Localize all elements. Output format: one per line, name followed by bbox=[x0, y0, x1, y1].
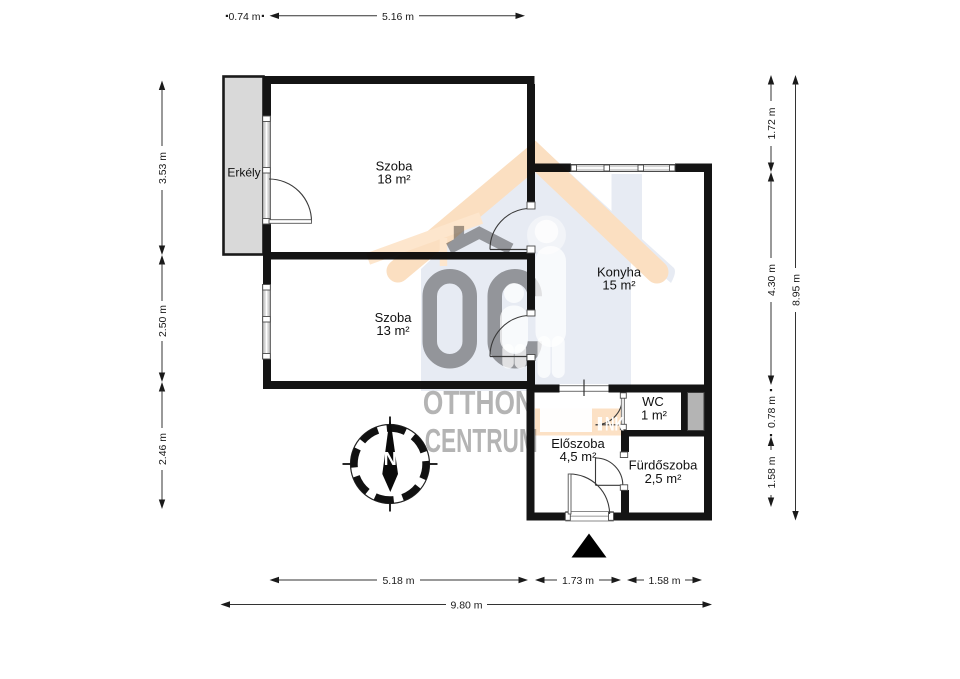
svg-text:N: N bbox=[384, 449, 397, 469]
svg-text:0.74 m: 0.74 m bbox=[228, 11, 260, 23]
svg-text:Konyha15 m²: Konyha15 m² bbox=[597, 265, 642, 293]
svg-text:2.50 m: 2.50 m bbox=[157, 305, 169, 337]
svg-text:1.58 m: 1.58 m bbox=[648, 575, 680, 587]
svg-text:Szoba13 m²: Szoba13 m² bbox=[375, 310, 413, 338]
svg-text:Erkély: Erkély bbox=[227, 166, 260, 180]
svg-text:1.58 m: 1.58 m bbox=[766, 456, 778, 488]
svg-text:1.73 m: 1.73 m bbox=[562, 575, 594, 587]
svg-text:Szoba18 m²: Szoba18 m² bbox=[376, 159, 414, 187]
svg-text:3.53 m: 3.53 m bbox=[157, 152, 169, 184]
svg-text:0.78 m: 0.78 m bbox=[766, 396, 778, 428]
svg-text:5.16 m: 5.16 m bbox=[382, 11, 414, 23]
svg-text:WC1 m²: WC1 m² bbox=[641, 394, 668, 423]
svg-text:5.18 m: 5.18 m bbox=[382, 575, 414, 587]
svg-text:8.95 m: 8.95 m bbox=[790, 274, 802, 306]
svg-text:CENTRUM: CENTRUM bbox=[425, 422, 538, 459]
svg-text:1.72 m: 1.72 m bbox=[766, 107, 778, 139]
svg-text:9.80 m: 9.80 m bbox=[450, 600, 482, 612]
svg-text:4.30 m: 4.30 m bbox=[766, 264, 778, 296]
svg-text:2.46 m: 2.46 m bbox=[157, 433, 169, 465]
svg-text:NK: NK bbox=[605, 414, 624, 436]
